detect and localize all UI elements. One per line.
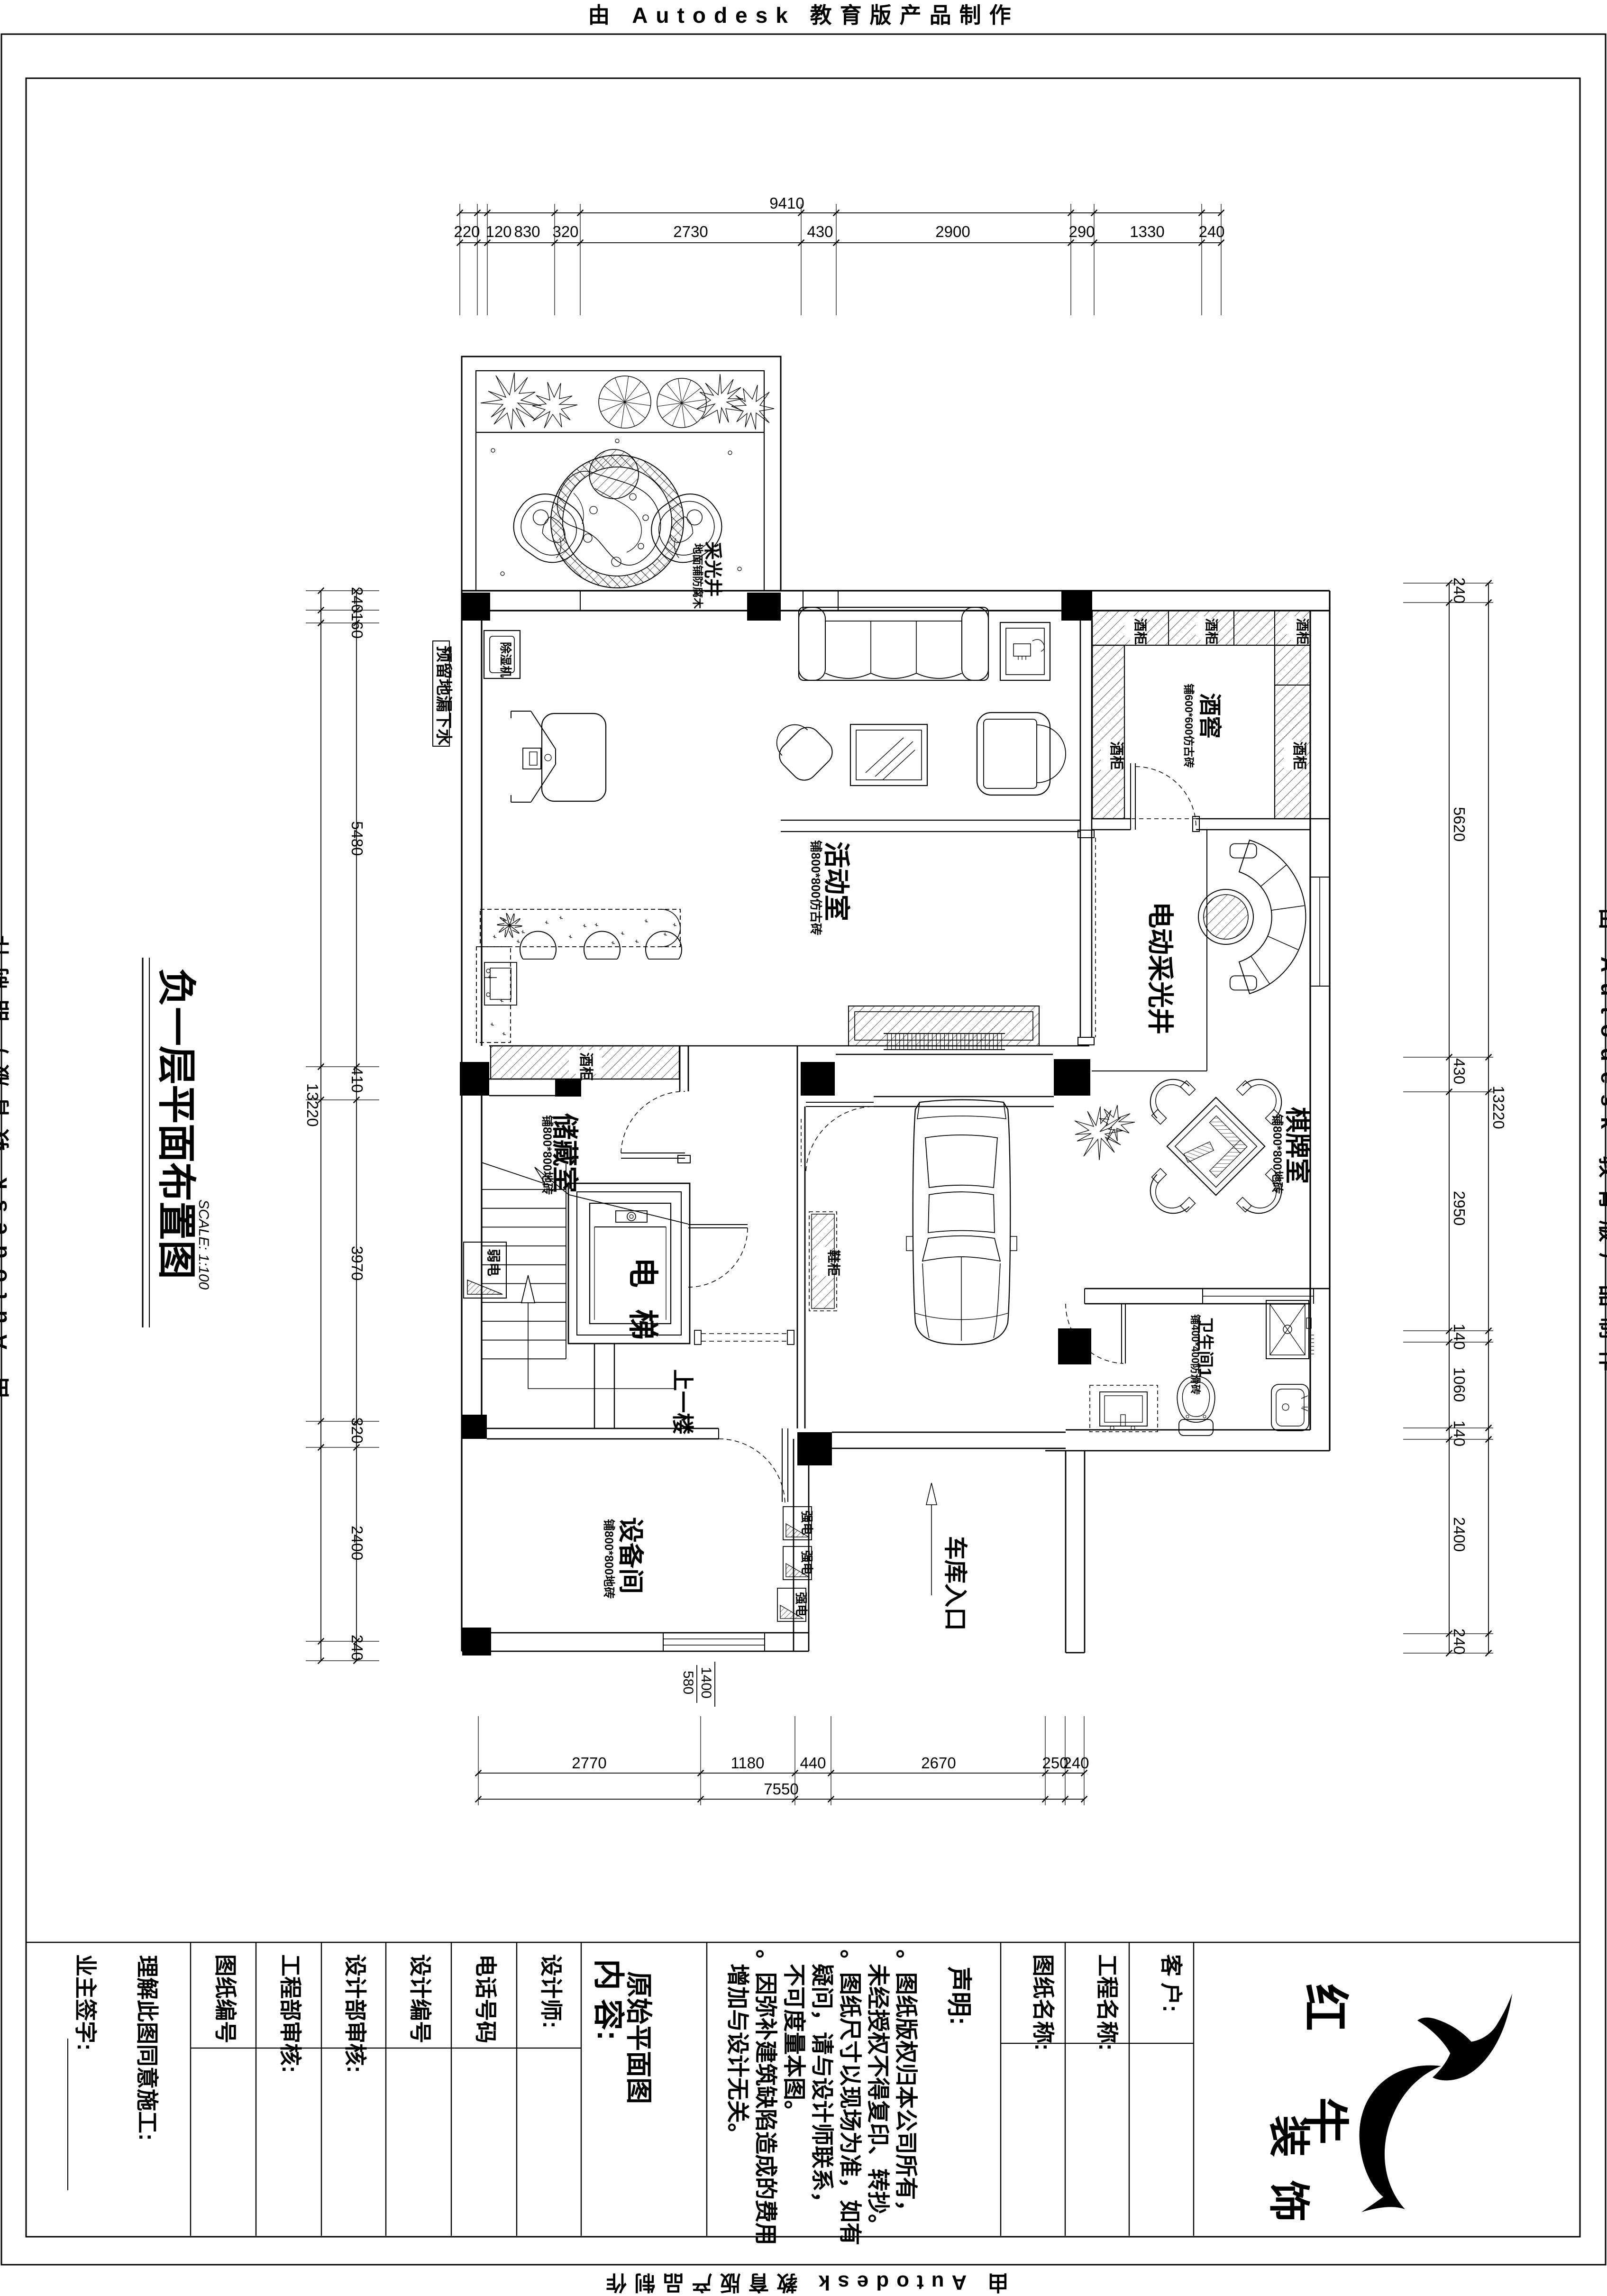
- svg-text:客 户:: 客 户:: [1159, 1954, 1184, 2012]
- svg-text:240: 240: [1198, 223, 1224, 240]
- svg-text:440: 440: [800, 1754, 826, 1772]
- svg-text:活动室: 活动室: [822, 842, 851, 921]
- svg-text:160: 160: [348, 613, 366, 639]
- svg-text:设备间: 设备间: [616, 1517, 645, 1594]
- svg-text:强电: 强电: [794, 1592, 808, 1617]
- svg-text:铺800*800地砖: 铺800*800地砖: [540, 1115, 554, 1195]
- svg-text:2730: 2730: [673, 223, 708, 240]
- svg-text:强电: 强电: [800, 1510, 814, 1535]
- svg-text:装 饰: 装 饰: [1265, 2115, 1312, 2227]
- svg-text:220: 220: [454, 223, 480, 240]
- svg-text:290: 290: [1068, 223, 1095, 240]
- svg-text:弱电: 弱电: [485, 1249, 501, 1276]
- svg-text:由 Autodesk 教育版产品制作: 由 Autodesk 教育版产品制作: [599, 2271, 1009, 2294]
- svg-text:酒窖: 酒窖: [1197, 693, 1222, 739]
- svg-text:业主签字:: 业主签字:: [73, 1954, 98, 2051]
- svg-text:内 容:: 内 容:: [591, 1959, 626, 2040]
- svg-text:铺600*600仿古砖: 铺600*600仿古砖: [1183, 684, 1195, 768]
- svg-text:除湿机: 除湿机: [499, 642, 512, 677]
- svg-text:320: 320: [552, 223, 578, 240]
- svg-text:2950: 2950: [1451, 1191, 1468, 1226]
- svg-text:原始平面图: 原始平面图: [624, 1971, 654, 2104]
- svg-text:1400: 1400: [698, 1667, 714, 1699]
- svg-text:不可度量本图。: 不可度量本图。: [781, 1964, 806, 2123]
- svg-text:2670: 2670: [921, 1754, 956, 1772]
- svg-text:13220: 13220: [304, 1083, 321, 1127]
- svg-text:120: 120: [485, 223, 511, 240]
- svg-text:电动采光井: 电动采光井: [1145, 902, 1175, 1034]
- svg-text:7550: 7550: [764, 1780, 798, 1798]
- svg-text:工程名称:: 工程名称:: [1095, 1954, 1120, 2051]
- svg-text:430: 430: [1451, 1058, 1468, 1084]
- svg-text:图纸编号: 图纸编号: [213, 1954, 238, 2043]
- svg-text:地面铺防腐木: 地面铺防腐木: [692, 543, 704, 609]
- svg-text:鞋柜: 鞋柜: [826, 1250, 841, 1276]
- svg-text:设计部审核:: 设计部审核:: [343, 1954, 368, 2073]
- svg-text:580: 580: [680, 1671, 696, 1694]
- svg-text:5480: 5480: [348, 821, 366, 856]
- svg-text:240: 240: [348, 587, 366, 613]
- svg-text:140: 140: [1451, 1324, 1468, 1350]
- svg-text:设计编号: 设计编号: [408, 1954, 433, 2043]
- svg-text:2400: 2400: [1451, 1517, 1468, 1552]
- svg-text:2900: 2900: [935, 223, 970, 240]
- svg-text:酒柜: 酒柜: [578, 1052, 593, 1081]
- svg-text:车库入口: 车库入口: [942, 1536, 968, 1631]
- svg-text:2400: 2400: [348, 1526, 366, 1560]
- svg-text:240: 240: [348, 1635, 366, 1661]
- svg-text:储藏室: 储藏室: [550, 1113, 580, 1193]
- svg-text:电话号码: 电话号码: [473, 1954, 498, 2043]
- svg-text:。因弥补建筑缺陷造成的费用: 。因弥补建筑缺陷造成的费用: [753, 1949, 778, 2245]
- svg-text:未经授权不得复印、转抄。: 未经授权不得复印、转抄。: [865, 1964, 890, 2237]
- svg-text:3970: 3970: [348, 1246, 366, 1281]
- svg-text:SCALE: 1:100: SCALE: 1:100: [196, 1199, 211, 1290]
- svg-text:铺400*400防滑砖: 铺400*400防滑砖: [1189, 1314, 1201, 1395]
- svg-text:由 Autodesk 教育版产品制作: 由 Autodesk 教育版产品制作: [1597, 908, 1607, 1381]
- svg-text:。图纸尺寸以现场为准，如有: 。图纸尺寸以现场为准，如有: [837, 1949, 862, 2245]
- svg-text:1180: 1180: [731, 1754, 765, 1772]
- svg-text:9410: 9410: [769, 194, 804, 212]
- svg-text:由 Autodesk 教育版产品制作: 由 Autodesk 教育版产品制作: [588, 3, 1019, 27]
- svg-text:240: 240: [1451, 1628, 1468, 1655]
- svg-text:1060: 1060: [1451, 1367, 1468, 1402]
- svg-text:1330: 1330: [1130, 223, 1164, 240]
- svg-text:采光井: 采光井: [702, 541, 722, 597]
- svg-text:。图纸版权归本公司所有，: 。图纸版权归本公司所有，: [893, 1949, 918, 2223]
- svg-text:增加与设计无关。: 增加与设计无关。: [725, 1964, 750, 2146]
- svg-text:酒柜: 酒柜: [1291, 741, 1307, 770]
- svg-text:电 梯: 电 梯: [626, 1257, 660, 1346]
- svg-text:240: 240: [1063, 1754, 1089, 1772]
- svg-text:830: 830: [514, 223, 540, 240]
- svg-text:2770: 2770: [572, 1754, 606, 1772]
- svg-text:由 Autodesk 教育版产品制作: 由 Autodesk 教育版产品制作: [0, 925, 11, 1399]
- svg-text:图纸名称:: 图纸名称:: [1031, 1954, 1056, 2051]
- svg-text:410: 410: [348, 1067, 366, 1093]
- svg-text:430: 430: [807, 223, 833, 240]
- svg-text:酒柜: 酒柜: [1204, 618, 1219, 645]
- svg-text:疑问，请与设计师联系，: 疑问，请与设计师联系，: [809, 1964, 834, 2214]
- svg-text:强电: 强电: [800, 1550, 814, 1575]
- svg-text:酒柜: 酒柜: [1295, 618, 1310, 645]
- svg-text:5620: 5620: [1451, 807, 1468, 842]
- svg-text:140: 140: [1451, 1420, 1468, 1446]
- svg-text:工程部审核:: 工程部审核:: [278, 1954, 303, 2073]
- svg-text:13220: 13220: [1490, 1086, 1507, 1129]
- svg-text:声明:: 声明:: [945, 1967, 973, 2025]
- svg-text:240: 240: [1451, 577, 1468, 604]
- svg-text:上一楼: 上一楼: [670, 1369, 695, 1435]
- svg-text:棋牌室: 棋牌室: [1283, 1107, 1311, 1184]
- svg-text:320: 320: [348, 1418, 366, 1444]
- svg-text:酒柜: 酒柜: [1108, 741, 1124, 770]
- svg-text:酒柜: 酒柜: [1133, 618, 1148, 645]
- svg-text:铺800*800仿古砖: 铺800*800仿古砖: [809, 840, 823, 935]
- svg-text:预留地漏下水: 预留地漏下水: [434, 646, 453, 746]
- svg-text:负一层平面布置图: 负一层平面布置图: [155, 968, 198, 1279]
- svg-text:铺800*800地砖: 铺800*800地砖: [602, 1519, 616, 1599]
- svg-text:理解此图同意施工:: 理解此图同意施工:: [135, 1955, 160, 2141]
- svg-text:设计师:: 设计师:: [539, 1954, 564, 2029]
